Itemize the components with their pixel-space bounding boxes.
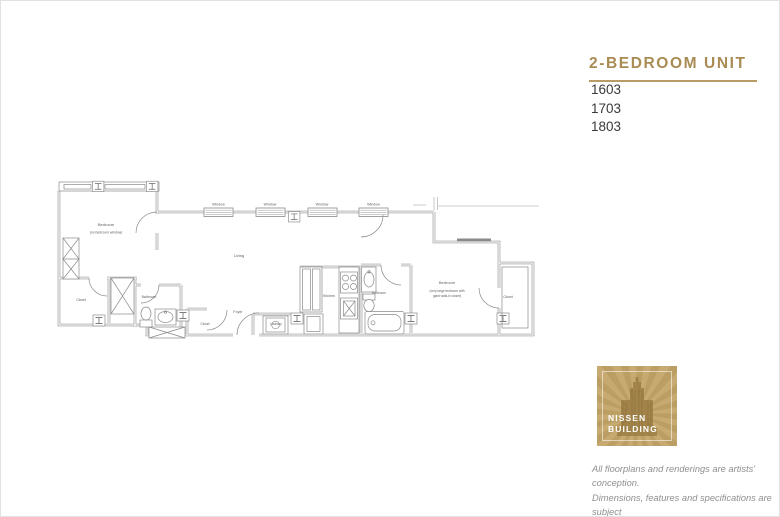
unit-number: 1703 [591, 100, 621, 119]
closet-foyer-label: Closet [200, 322, 209, 326]
window-label-2: Window [264, 203, 277, 207]
logo-wordmark: NISSEN BUILDING [608, 413, 658, 435]
kitchen-label: Kitchen [323, 294, 335, 298]
logo-line-1: NISSEN [608, 413, 658, 424]
bathroom1-fixtures [140, 307, 176, 327]
living-windows [204, 208, 388, 222]
floorplan-sheet: Bedroom (no bedroom window) Closet Bathr… [0, 0, 780, 517]
window-label-4: Window [367, 203, 380, 207]
bedroom2-note-2: giant walk-in closet) [433, 294, 461, 298]
disclaimer-line-1: All floorplans and renderings are artist… [592, 462, 772, 491]
title-block: 2-BEDROOM UNIT [589, 55, 757, 82]
disclaimer-line-2: Dimensions, features and specifications … [592, 491, 772, 517]
window-label-3: Window [316, 203, 329, 207]
unit-number-list: 1603 1703 1803 [591, 81, 621, 137]
bedroom1-label: Bedroom [98, 222, 115, 227]
closet-right-label: Closet [503, 295, 513, 299]
window-label-1: Window [212, 203, 225, 207]
closet-left-label: Closet [76, 298, 86, 302]
bedroom1-exterior-wall [59, 181, 159, 191]
bedroom2-note-1: (very large bedroom with [429, 289, 464, 293]
bathroom2-fixtures [362, 267, 405, 334]
laundry-label: Laundry [270, 322, 282, 326]
disclaimer-text: All floorplans and renderings are artist… [592, 462, 772, 517]
bedroom1-note: (no bedroom window) [90, 231, 123, 235]
exterior-lines [413, 197, 539, 242]
bathroom2-label: Bathroom [372, 291, 386, 295]
unit-number: 1603 [591, 81, 621, 100]
bedroom2-label: Bedroom [439, 280, 456, 285]
page-title: 2-BEDROOM UNIT [589, 55, 757, 82]
nissen-building-logo: NISSEN BUILDING [597, 366, 677, 446]
foyer-label: Foyer [233, 310, 243, 314]
living-label: Living [234, 253, 244, 258]
unit-number: 1803 [591, 118, 621, 137]
logo-line-2: BUILDING [608, 424, 658, 435]
bathroom1-label: Bathroom [142, 295, 157, 299]
